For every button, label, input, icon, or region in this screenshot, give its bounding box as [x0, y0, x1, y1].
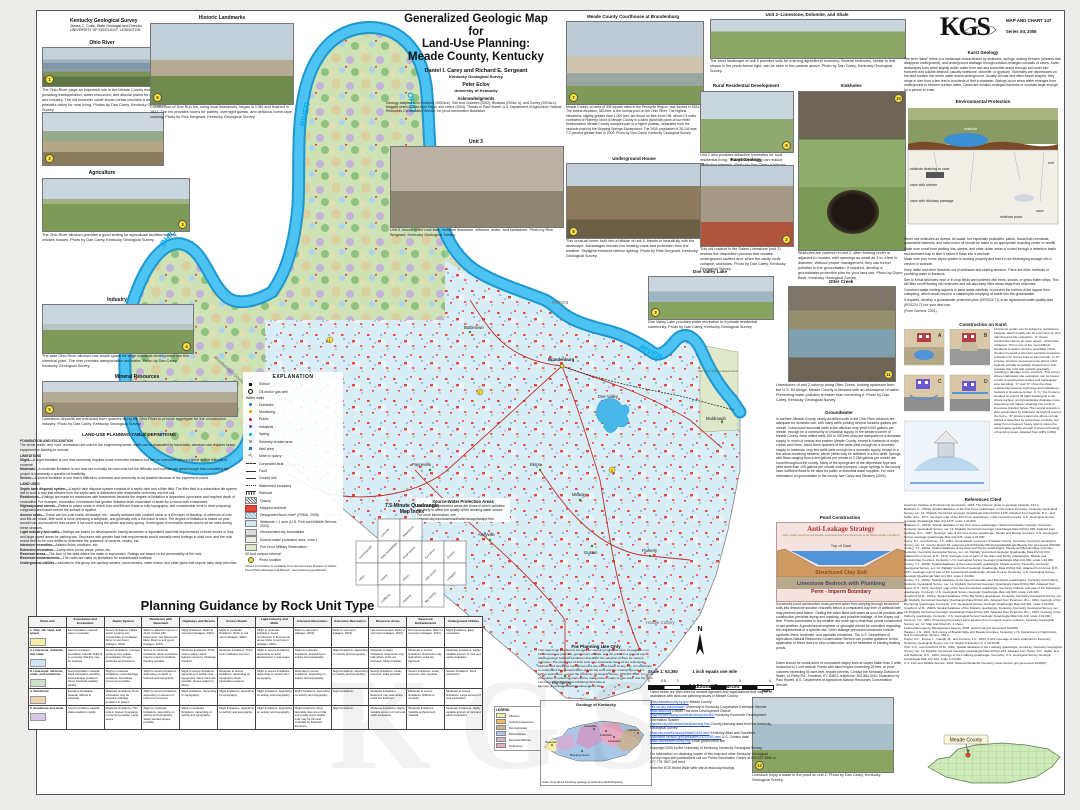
- fort-knox-label: Fort Knox Military Reservation: [698, 369, 739, 373]
- meade-county-callout-label: Meade County: [950, 737, 983, 743]
- fort-knox-swatch: [245, 544, 257, 550]
- town-label: Payneville: [412, 462, 432, 467]
- ep-bullet: If required, develop a groundwater prote…: [904, 298, 1062, 307]
- unit2-pano-photo: [710, 19, 906, 59]
- rock-unit-name: 5. Sandstone and shale: [30, 707, 65, 711]
- environmental-protection-heading: Environmental Protection: [904, 99, 1062, 104]
- table-cell: Slight to moderate limitations. Local dr…: [104, 668, 142, 689]
- unit3-caption: Unit 3, shown in the rock face, includes…: [390, 228, 562, 238]
- city-label: Ashland: [628, 728, 639, 732]
- rock-unit-swatch: [30, 638, 46, 646]
- resource-desc: U.S. Census data: [722, 735, 749, 739]
- diagram-letter: C: [938, 379, 942, 385]
- sinkholes-heading: Sinkholes: [798, 83, 904, 88]
- fault-symbol: [245, 468, 256, 474]
- historic-landmarks-photo: 6: [150, 23, 294, 105]
- def-text: These are low-cost roads, driveways, etc…: [20, 513, 232, 530]
- series-block: MAP AND CHART 147 Series XII, 2006: [1006, 18, 1062, 34]
- rock-unit-swatch: [30, 659, 46, 667]
- col-header: Rock unit: [29, 617, 67, 628]
- col-header: Reservoir Areas: [369, 617, 407, 628]
- groundwater-text: In northern Meade County, nearly all dri…: [776, 417, 902, 478]
- table-cell: Slight limitations, depending on activit…: [255, 689, 293, 706]
- explanation-legend: EXPLANATION School Oil and/or gas well W…: [243, 372, 343, 575]
- unit2-pano-heading: Unit 2–Limestone, Dolomite, and Shale: [710, 12, 904, 17]
- table-cell: Moderate limitations. Highly variable am…: [445, 648, 483, 669]
- planning-table: Rock unit Foundation and Excavation Sept…: [28, 616, 483, 730]
- rock-unit-name: 2. Limestone, dolomite, and shale: [30, 649, 65, 657]
- table-cell: Moderate limitations. Variable embankmen…: [407, 706, 445, 730]
- doe-valley-caption: Doe Valley Lake provides water recreatio…: [648, 320, 772, 330]
- table-cell: Slight limitations.: [331, 689, 369, 706]
- environmental-protection-bullets: Never use sinkholes as dumps. All waste,…: [904, 237, 1062, 313]
- explanation-title: EXPLANATION: [245, 374, 341, 380]
- legend-label: County line: [259, 476, 277, 480]
- table-cell: Slight to moderate limitations. Refer to…: [218, 627, 256, 648]
- table-cell: Moderate limitations. Rock excavation ma…: [104, 689, 142, 706]
- additional-resources-intro: Listed below are Web sites for several a…: [650, 690, 778, 699]
- table-cell: Refer to soil report (Haagen, 2001).: [331, 627, 369, 648]
- karst-geology-heading: Karst Geology: [904, 50, 1062, 55]
- otter-creek-photo: 11: [788, 286, 896, 382]
- top-of-dam-label: Top of Dam: [831, 543, 852, 548]
- reference-item: Crawford, M.M., 2002b, Spatial database …: [904, 607, 1062, 619]
- pond-construction-text1: Successful pond construction must preven…: [776, 602, 904, 650]
- table-row: 1. Clay, silt, sand, and gravel Fair fou…: [29, 627, 483, 648]
- table-cell: Slight limitations. Refer to soil report…: [180, 627, 218, 648]
- diagram-label: cave: [1036, 209, 1044, 213]
- diagram-label: cave with tributary passage: [910, 199, 954, 203]
- unit2-pano-caption: The karst landscape of unit 2 provides s…: [710, 59, 904, 74]
- town-label: Muldraugh: [706, 416, 726, 421]
- photo-badge: 8: [569, 227, 578, 236]
- scale-tick: 1: [677, 679, 679, 683]
- diagram-label: cave with stream: [910, 183, 937, 187]
- watershed-boundary-symbol: [245, 483, 256, 489]
- ep-bullet: Keep cattle and other livestock out of s…: [904, 268, 1062, 277]
- table-cell: Good foundation material. Rock excavatio…: [66, 668, 104, 689]
- scale-tick: 0: [648, 679, 650, 683]
- doe-valley-heading: Doe Valley Lake: [648, 269, 772, 274]
- town-label: Brandenburg: [548, 357, 575, 362]
- table-cell: Fair foundation material; easy to excava…: [66, 627, 104, 648]
- rock-unit-swatch: [30, 713, 46, 721]
- map-title-line1: Generalized Geologic Map: [386, 13, 566, 26]
- scale-tick: 0.5: [661, 679, 666, 683]
- geology-ky-legend: LEGEND Alluvium Tertiary/Cretaceous Penn…: [494, 706, 542, 751]
- table-cell: Severe limitations. Improper systems may…: [104, 648, 142, 669]
- rock-unit-swatch: [30, 696, 46, 704]
- agriculture-heading: Agriculture: [42, 170, 162, 176]
- photo-badge: 5: [45, 405, 54, 414]
- photo-badge: 11: [884, 370, 893, 379]
- rock-unit-name: 3. Limestone, siltstone, shale, and sand…: [30, 670, 65, 678]
- town-label: Battletown: [464, 325, 484, 330]
- gky-legend-label: Mississippian: [509, 732, 526, 736]
- railroad-symbol: [245, 490, 256, 496]
- groundwater-heading: Groundwater: [776, 410, 902, 415]
- spring-symbol: [245, 431, 256, 437]
- map-chart-number: MAP AND CHART 147: [1006, 18, 1062, 23]
- city-label: Frankfort: [600, 733, 612, 737]
- reference-item: Crawford, M.M., 2002a, Spatial database …: [904, 595, 1062, 607]
- legend-label: Mapped sinkhole: [260, 506, 286, 510]
- table-cell: Slight to moderate limitations, dependin…: [142, 706, 180, 730]
- reference-item: Conley, T.J., 2003a, Spatial database of…: [904, 547, 1062, 563]
- courthouse-photo: 7: [566, 21, 704, 105]
- gky-legend-label: Alluvium: [509, 714, 520, 718]
- col-header: Septic System: [104, 617, 142, 628]
- town-label: Ekron: [530, 462, 542, 467]
- kentucky-county-map: Meade County: [924, 733, 1064, 791]
- sinkholes-caption: Sinkholes are common in unit 2, often fo…: [798, 251, 904, 281]
- table-cell: Moderate to severe limitations. Large am…: [445, 689, 483, 706]
- table-cell: Excellent foundation material; difficult…: [66, 689, 104, 706]
- table-cell: Slight limitations, depending on topogra…: [180, 689, 218, 706]
- table-cell: Slight limitations. Most favorable sites…: [293, 706, 331, 730]
- ep-bullet: See to it that sinkholes near or in crop…: [904, 278, 1062, 287]
- photo-badge: 9: [782, 141, 791, 150]
- def-item: Septic tank disposal system—A septic tan…: [20, 487, 238, 496]
- table-cell: Moderate limitations. Reservoir may leak…: [369, 689, 407, 706]
- table-cell: Not recommended. Refer to soil report (H…: [407, 627, 445, 648]
- reference-item: Conley, T.J., 2003c, Spatial database of…: [904, 579, 1062, 595]
- table-cell: Moderate limitations. Thin soils in plac…: [104, 706, 142, 730]
- table-cell: Slight limitations, depending on activit…: [331, 668, 369, 689]
- north-label: N: [694, 626, 706, 633]
- legend-label: Quarry: [260, 499, 271, 503]
- table-cell: Slight to severe limitations, depending …: [142, 668, 180, 689]
- table-cell: Refer to soil report (Haagen, 2001).: [293, 627, 331, 648]
- north-arrow: N: [694, 626, 706, 664]
- table-row: 5. Sandstone and shale Good foundation m…: [29, 706, 483, 730]
- city-label: Paducah: [545, 740, 557, 744]
- rock-unit-name: 1. Clay, silt, sand, and gravel: [30, 629, 65, 637]
- industrial-well-symbol: [245, 424, 256, 430]
- table-cell: Moderate to severe limitations. Difficul…: [407, 689, 445, 706]
- table-cell: Slight limitations, depending on topogra…: [218, 689, 256, 706]
- sinkholes-photo: 10: [798, 91, 906, 251]
- hardin-label: Hardin County: [646, 620, 676, 625]
- legend-label: Spring: [259, 432, 269, 436]
- public-well-symbol: [245, 416, 256, 422]
- otter-creek-heading: Otter Creek: [788, 279, 894, 284]
- def-text: Ratings are made for residences with bas…: [20, 495, 235, 503]
- otter-creek-caption: Limestones of unit 2 outcrop along Otter…: [776, 383, 900, 403]
- oil-gas-well-symbol: [245, 389, 256, 395]
- table-cell: Slight limitations. Easy excavation.: [445, 627, 483, 648]
- monitoring-well-symbol: [245, 409, 256, 415]
- legend-label: Oil and/or gas well: [259, 390, 288, 394]
- town-label: Andyville: [478, 532, 495, 537]
- diagram-letter: D: [984, 379, 988, 385]
- mine-quarry-symbol: ⛏: [245, 453, 256, 459]
- table-cell: Moderate to severe limitations. Reservoi…: [407, 648, 445, 669]
- col-header: Access Roads: [218, 617, 256, 628]
- legend-label: Source-water protection area, zone 1: [260, 538, 318, 542]
- photo-badge: 3: [178, 220, 187, 229]
- col-header: Residence with Basement: [142, 617, 180, 628]
- def-term: Underground utilities—: [20, 561, 58, 565]
- reference-item: Toth, K.S., and Crawford, M.M., 2002, Sp…: [904, 646, 1062, 662]
- copyright-line: Copyright 2006 by the University of Kent…: [650, 746, 778, 750]
- legend-label: Well area: [259, 447, 274, 451]
- ep-bullet: Make sure runoff from parking lots, stre…: [904, 247, 1062, 256]
- ep-bullet: Construct waste-holding lagoons in karst…: [904, 288, 1062, 297]
- karst-geology-text: The term “karst” refers to a landscape c…: [904, 57, 1062, 92]
- def-item: Slight—A slight limitation is one that c…: [20, 458, 238, 467]
- planning-table-header-row: Rock unit Foundation and Excavation Sept…: [29, 617, 483, 628]
- courthouse-heading: Meade County Courthouse at Brandenburg: [564, 14, 702, 19]
- col-header: Light Industry and Malls: [255, 617, 293, 628]
- city-label: Bowling Green: [570, 753, 590, 757]
- resource-link-row: www.visitmeadecounty.org/ Local governme…: [650, 739, 778, 743]
- legend-label: Mine or quarry: [259, 454, 282, 458]
- scale-tick: 2: [708, 679, 710, 683]
- town-label: Guston: [584, 550, 598, 555]
- svg-text:7: 7: [479, 391, 481, 395]
- reference-item: Bhattara, K., 2004a, Spatial database of…: [904, 508, 1062, 524]
- ep-source: (From Currens, 2001): [904, 309, 1062, 313]
- table-cell: Moderate to severe limitations, dependin…: [293, 668, 331, 689]
- def-item: Light industry and malls—Ratings are bas…: [20, 530, 238, 543]
- website-line: View the KGS World Wide Web site at www.…: [650, 766, 778, 770]
- underground-house-photo: 8: [566, 163, 704, 239]
- author2-affiliation: University of Kentucky: [386, 88, 566, 93]
- photo-badge: 3: [651, 308, 660, 317]
- table-cell: Slight limitations, depending on activit…: [293, 689, 331, 706]
- table-cell: Slight to severe limitations, depending …: [142, 689, 180, 706]
- photo-location-symbol: [245, 557, 256, 563]
- construction-on-karst-text: Limestone terrain can be subject to subs…: [994, 328, 1062, 435]
- additional-resources: Additional Resources Listed below are We…: [650, 684, 778, 771]
- table-cell: Severe limitations. Failed septic system…: [104, 627, 142, 648]
- resource-link-row: kgsweb.uky.edu/download/planning.htm Cou…: [650, 722, 778, 731]
- gky-legend-label: Ordovician: [509, 744, 522, 748]
- domestic-well-symbol: [245, 402, 256, 408]
- table-row: 3. Limestone, siltstone, shale, and sand…: [29, 668, 483, 689]
- col-header: Reservoir Embankments: [407, 617, 445, 628]
- table-row: 2. Limestone, dolomite, and shale Good t…: [29, 648, 483, 669]
- scale-tick: 4: [769, 679, 771, 683]
- col-header: Intensive Recreation: [293, 617, 331, 628]
- well-area-symbol: [245, 446, 256, 452]
- resource-desc: Local government site: [692, 739, 725, 743]
- scale-equivalence: 1 inch equals one mile: [692, 669, 737, 674]
- svg-text:3: 3: [611, 469, 613, 473]
- scale-tick: 3: [739, 679, 741, 683]
- table-cell: Slight to moderate limitations, dependin…: [293, 648, 331, 669]
- table-cell: Severe limitations. Leaky reservoir; lin…: [407, 668, 445, 689]
- photo-badge: 1: [45, 75, 54, 84]
- historic-landmarks-caption: Construction of Doe Run Inn, using local…: [150, 105, 296, 120]
- table-cell: Moderate limitations. Highly variable am…: [445, 706, 483, 730]
- table-cell: Slight limitations.: [331, 706, 369, 730]
- resource-link-row: www.thinkkentucky.com/edis/cmnty/cw062/ …: [650, 713, 778, 722]
- legend-label: Severely eroded area: [259, 440, 292, 444]
- industry-heading: Industry: [42, 297, 192, 303]
- mineral-resources-caption: Limestone deposits are extracted from qu…: [42, 417, 236, 427]
- gky-legend-label: Devonian/Silurian: [509, 738, 531, 742]
- legend-label: Monitoring: [259, 410, 275, 414]
- karst-geology-photo: 2: [700, 165, 794, 247]
- construction-on-karst-diagrams: A B C D: [904, 329, 990, 493]
- table-cell: Moderate limitations. Thick soils in pla…: [180, 648, 218, 669]
- table-cell: Severe limitations. Leaky reservoir; sin…: [369, 668, 407, 689]
- anti-leakage-title: Anti-Leakage Strategy: [777, 525, 905, 533]
- table-cell: Good foundation material; shale weathers…: [66, 706, 104, 730]
- table-cell: Good to excellent foundation material. D…: [66, 648, 104, 669]
- table-cell: Slight to severe limitations, depending …: [255, 648, 293, 669]
- gky-legend-label: Tertiary/Cretaceous: [509, 720, 533, 724]
- legend-label: Railroad: [259, 491, 272, 495]
- def-item: Residences—Ratings are made for residenc…: [20, 495, 238, 504]
- mineral-resources-heading: Mineral Resources: [42, 374, 232, 380]
- table-cell: Slight limitations, depending on activit…: [255, 706, 293, 730]
- rock-unit-name: 4. Sandstone: [30, 690, 65, 694]
- def-text: Included in this group are sanitary sewe…: [58, 561, 238, 565]
- col-header: Underground Utilities: [445, 617, 483, 628]
- def-item: Access roads—These are low-cost roads, d…: [20, 513, 238, 530]
- table-cell: Slight to severe limitations, depending …: [255, 668, 293, 689]
- map-title-line3: Land-Use Planning:: [386, 38, 566, 51]
- table-cell: Slight limitations, depending on activit…: [218, 706, 256, 730]
- geology-of-kentucky: Geology of Kentucky Paducah Bowling Gree…: [540, 700, 652, 786]
- legend-label: Domestic: [259, 403, 274, 407]
- perm-boundary-label: Perm - Imperm Boundary: [811, 589, 871, 595]
- quarry-swatch: [245, 498, 257, 504]
- flood-zone-swatch: [245, 512, 257, 518]
- table-cell: Water in alluvium may be in direct conta…: [142, 627, 180, 648]
- reference-item: U.S. Fish and Wildlife Service, 2003, Na…: [904, 662, 1062, 666]
- meander-valley-photo: 2: [42, 112, 164, 166]
- diagram-label: sinkhole draining to cave: [910, 167, 950, 171]
- def-item: Moderate—A moderate limitation is one th…: [20, 467, 238, 476]
- def-text: A slight limitation is one that commonly…: [20, 458, 227, 466]
- scale-text: Scale 1: 63,360: [648, 669, 678, 674]
- town-label: Doe Valley: [598, 394, 619, 399]
- flood-footnote: *Flood information is available from the…: [245, 565, 341, 573]
- mapped-sinkhole-swatch: [245, 505, 257, 511]
- photo-badge: 4: [182, 342, 191, 351]
- legend-label: Fort Knox Military Reservation: [260, 545, 307, 549]
- karst-geology-photo-caption: This old roadcut in the Salem Limestone …: [700, 247, 792, 272]
- def-item: Severe—A severe limitation is one that i…: [20, 476, 238, 480]
- table-cell: Moderate to severe limitations, dependin…: [218, 668, 256, 689]
- agriculture-photo: 3: [42, 178, 190, 232]
- clay-soil-label: Structured Clay Soil: [815, 570, 867, 576]
- anti-leakage-diagram: Anti-Leakage Strategy Deny water access …: [776, 522, 906, 602]
- doe-valley-photo: 3: [648, 276, 774, 320]
- acknowledgments-text: Geology adapted from Crawford (2002a-e),…: [386, 101, 566, 114]
- gky-legend-label: Pennsylvanian: [509, 726, 527, 730]
- pond-construction-heading: Pond Construction: [776, 515, 904, 520]
- photo-badge: 7: [569, 93, 578, 102]
- legend-label: Photo location: [259, 558, 281, 562]
- def-text: A severe limitation is one that is diffi…: [35, 476, 209, 480]
- table-cell: Slight to severe limitations, depending …: [180, 668, 218, 689]
- historic-landmarks-heading: Historic Landmarks: [150, 15, 294, 21]
- geology-of-kentucky-map: Paducah Bowling Green Louisville Frankfo…: [542, 707, 646, 775]
- def-term: Severe—: [20, 476, 35, 480]
- photo-badge: 10: [894, 94, 903, 103]
- town-label: Flaherty: [642, 548, 658, 553]
- table-cell: Slight to moderate limitations, dependin…: [180, 706, 218, 730]
- legend-label: Watershed boundary: [259, 484, 291, 488]
- table-cell: Moderate limitations. Thick soils; sinkh…: [218, 648, 256, 669]
- def-foundation-text: The terms “earth” and “rock” excavation …: [20, 443, 238, 452]
- table-row: 4. Sandstone Excellent foundation materi…: [29, 689, 483, 706]
- city-boundaries-swatch: [245, 529, 257, 535]
- table-cell: Severe limitations. Rock excavation.: [445, 668, 483, 689]
- eroded-area-symbol: [245, 439, 256, 445]
- city-label: Louisville: [584, 724, 597, 728]
- resource-link[interactable]: www.visitmeadecounty.org/: [650, 739, 691, 743]
- reference-item: Bhattara, K., 2004b, Spatial database of…: [904, 524, 1062, 540]
- diagram-label: exit: [1048, 161, 1054, 165]
- anti-leakage-graphic: Top of Dam Structured Clay Soil Limeston…: [777, 537, 905, 595]
- ep-bullet: Never use sinkholes as dumps. All waste,…: [904, 237, 1062, 246]
- photo-badge: 2: [45, 154, 54, 163]
- references-heading: References Cited: [904, 497, 1062, 502]
- series-label: Series XII, 2006: [1006, 29, 1062, 34]
- svg-text:1: 1: [329, 339, 331, 343]
- table-cell: Slight limitations, depending on activit…: [331, 648, 369, 669]
- legend-label: Public: [259, 417, 269, 421]
- meade-county-highlight: [966, 753, 970, 757]
- def-text: A moderate limitation is one that can no…: [20, 467, 229, 475]
- unit3-heading: Unit 3: [390, 139, 562, 145]
- legend-label: Wetlands > 1 acre (U.S. Fish and Wildlif…: [260, 520, 341, 528]
- agriculture-caption: The Ohio River alluvium provides a good …: [42, 233, 188, 243]
- map-title-line4: Meade County, Kentucky: [386, 51, 566, 64]
- definitions-title: LAND-USE PLANNING TABLE DEFINITIONS: [20, 432, 238, 437]
- ohio-river-photo: 1: [42, 47, 164, 87]
- rural-dev-photo: 9: [700, 91, 794, 153]
- table-cell: Slight to moderate limitations. Avoid co…: [255, 627, 293, 648]
- contour-note: 40-foot contour interval: [245, 552, 341, 556]
- karst-geology-photo-heading: Karst Geology: [700, 157, 792, 162]
- col-header: Extensive Recreation: [331, 617, 369, 628]
- mineral-resources-photo: 5: [42, 381, 238, 417]
- school-symbol: [245, 381, 256, 387]
- def-item: Underground utilities—Included in this g…: [20, 561, 238, 565]
- karst-block-diagram: sinkhole draining to cave cave with stre…: [904, 106, 1062, 234]
- rural-dev-heading: Rural Residential Development: [700, 83, 792, 88]
- wetlands-swatch: [245, 521, 257, 527]
- diagram-label: sinkhole pond: [1000, 215, 1022, 219]
- unit3-photo: [390, 146, 564, 228]
- geology-of-kentucky-caption: Learn more about Kentucky geology at www…: [542, 780, 650, 784]
- legend-label: Concealed fault: [259, 462, 283, 466]
- underground-house-caption: This unusual home, built into a hillside…: [566, 239, 702, 259]
- photo-badge: 6: [153, 93, 162, 102]
- industry-caption: The wide Ohio River alluvium has ample s…: [42, 354, 194, 369]
- definitions-section: LAND-USE PLANNING TABLE DEFINITIONS FOUN…: [20, 432, 238, 565]
- planning-use-note: For Planning Use Only This map is not in…: [538, 644, 654, 689]
- title-block: Generalized Geologic Map for Land-Use Pl…: [386, 13, 566, 114]
- bedrock-label: Limestone Bedrock with Plumbing: [797, 581, 885, 587]
- concealed-fault-symbol: [245, 461, 256, 467]
- legend-label: Fault: [259, 469, 267, 473]
- diagram-label: sinkhole: [964, 127, 977, 131]
- industry-photo: 4: [42, 304, 194, 354]
- table-cell: Not recommended. Refer to soil report (H…: [369, 627, 407, 648]
- def-item: Highways and streets—Refers to paved roa…: [20, 504, 238, 513]
- county-line-symbol: [245, 475, 256, 481]
- kentucky-shape: [928, 743, 1060, 783]
- col-header: Highways and Streets: [180, 617, 218, 628]
